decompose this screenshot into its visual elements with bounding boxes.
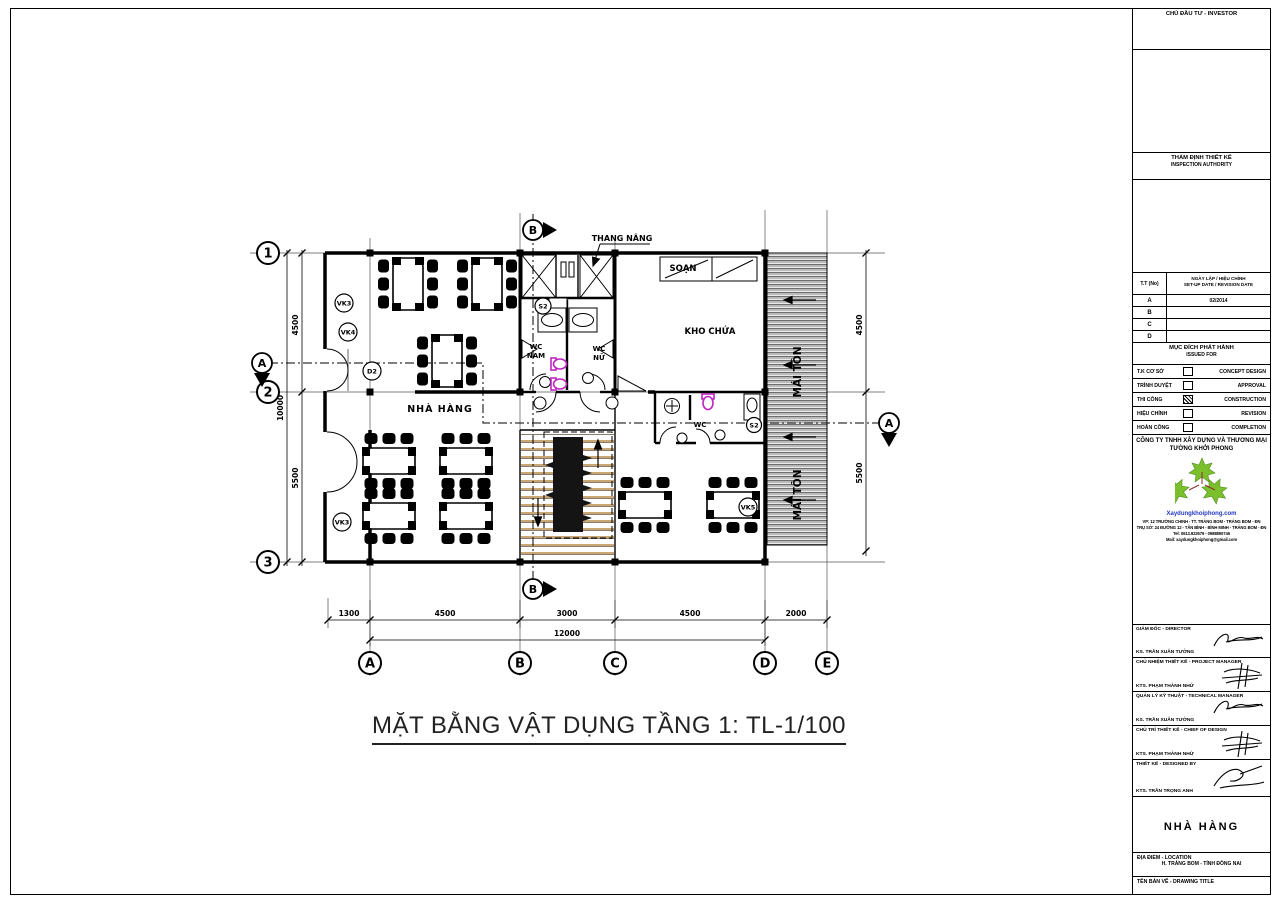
dim-total-bottom: 12000	[554, 629, 580, 638]
revision-header: T.T (No) NGÀY LẬP / HIỆU CHỈNH SET-UP DA…	[1133, 273, 1270, 295]
purpose-checkbox-1	[1183, 381, 1193, 390]
signer-designed-by: THIẾT KẾ - DESIGNED BY KTS. TRẦN TRỌNG A…	[1133, 760, 1270, 797]
dim-left-2: 5500	[291, 468, 300, 489]
tag-vk5: VK5	[741, 504, 756, 512]
signature-2	[1208, 696, 1268, 720]
signature-4	[1210, 764, 1268, 792]
dim-right-2: 5500	[855, 463, 864, 484]
purpose-vn-3: HIỆU CHỈNH	[1137, 411, 1183, 417]
dim-left-1: 4500	[291, 315, 300, 336]
grid-row-3: 3	[263, 556, 272, 571]
purpose-checkbox-4	[1183, 423, 1193, 432]
section-a-left: A	[258, 357, 267, 370]
rev-b-no: B	[1133, 307, 1167, 318]
roof-label-top: MÁI TÔN	[791, 346, 804, 397]
purpose-vn-4: HOÀN CÔNG	[1137, 425, 1183, 431]
rev-d-no: D	[1133, 331, 1167, 342]
purpose-en-3: REVISION	[1193, 411, 1266, 417]
dim-1300: 1300	[339, 609, 360, 618]
staircase	[521, 432, 614, 558]
purpose-en-4: COMPLETION	[1193, 425, 1266, 431]
purpose-checkbox-0	[1183, 367, 1193, 376]
company-box: CÔNG TY TNHH XÂY DỰNG VÀ THƯƠNG MẠI TƯỜN…	[1133, 435, 1270, 625]
signer-name-0: KS. TRẦN XUÂN TƯỞNG	[1136, 650, 1194, 655]
grid-col-b: B	[515, 657, 525, 672]
grid-col-e: E	[823, 657, 832, 672]
signer-technical-manager: QUẢN LÝ KỸ THUẬT - TECHNICAL MANAGER KS.…	[1133, 692, 1270, 726]
inspection-label-en: INSPECTION AUTHORITY	[1133, 162, 1270, 168]
dim-2000: 2000	[786, 609, 807, 618]
purpose-en-0: CONCEPT DESIGN	[1193, 369, 1266, 375]
revision-row-d: D	[1133, 331, 1270, 343]
label-pantry: SOẠN	[669, 264, 696, 274]
grid-col-c: C	[610, 657, 620, 672]
location-box: ĐỊA ĐIỂM - LOCATION H. TRẢNG BOM - TỈNH …	[1133, 853, 1270, 877]
drawing-main-title: MẶT BẰNG VẬT DỤNG TẦNG 1: TL-1/100	[372, 712, 846, 745]
signer-name-4: KTS. TRẦN TRỌNG ANH	[1136, 789, 1193, 794]
purpose-checkbox-3	[1183, 409, 1193, 418]
grid-row-1: 1	[263, 247, 272, 262]
section-b-bottom: B	[529, 583, 537, 596]
revision-row-c: C	[1133, 319, 1270, 331]
rev-c-no: C	[1133, 319, 1167, 330]
inspection-box: THẨM ĐỊNH THIẾT KẾ INSPECTION AUTHORITY	[1133, 153, 1270, 180]
signature-1	[1212, 662, 1268, 690]
title-block: CHỦ ĐẦU TƯ - INVESTOR THẨM ĐỊNH THIẾT KẾ…	[1132, 8, 1271, 895]
project-name-box: NHÀ HÀNG	[1133, 797, 1270, 853]
signer-director: GIÁM ĐỐC - DIRECTOR KS. TRẦN XUÂN TƯỞNG	[1133, 625, 1270, 658]
tag-s2: S2	[538, 303, 547, 311]
inspection-label-vn: THẨM ĐỊNH THIẾT KẾ	[1133, 155, 1270, 162]
company-address-1: VP: 12 TRƯỜNG CHINH - TT. TRẢNG BOM - TR…	[1133, 519, 1270, 525]
purpose-row-1: TRÌNH DUYỆT APPROVAL	[1133, 379, 1270, 393]
rev-d-date	[1167, 331, 1270, 342]
company-logo-icon	[1175, 456, 1229, 506]
label-wc-male-1: WC	[530, 343, 543, 351]
purpose-row-0: T.K CƠ SỞ CONCEPT DESIGN	[1133, 365, 1270, 379]
signer-name-1: KTS. PHẠM THÀNH NHỨ	[1136, 684, 1194, 689]
company-name-line1: CÔNG TY TNHH XÂY DỰNG VÀ THƯƠNG MẠI	[1133, 438, 1270, 446]
grid-col-a: A	[365, 657, 375, 672]
signer-chief-design: CHỦ TRÌ THIẾT KẾ - CHIEF OF DESIGN KTS. …	[1133, 726, 1270, 760]
label-wc-female-2: NỮ	[593, 353, 605, 362]
investor-box: CHỦ ĐẦU TƯ - INVESTOR	[1133, 9, 1270, 50]
roof-label-bottom: MÁI TÔN	[791, 469, 804, 520]
section-b-top: B	[529, 224, 537, 237]
signer-role-4: THIẾT KẾ - DESIGNED BY	[1136, 762, 1196, 767]
section-a-right: A	[885, 417, 894, 430]
rev-a-date: 02/2014	[1167, 295, 1270, 306]
investor-space	[1133, 50, 1270, 153]
project-name: NHÀ HÀNG	[1133, 797, 1270, 833]
drawing-title-box: TÊN BẢN VẼ - DRAWING TITLE	[1133, 877, 1270, 904]
tag-d2: D2	[367, 368, 377, 376]
tag-vk4: VK4	[341, 329, 356, 337]
signer-name-2: KS. TRẦN XUÂN TƯỞNG	[1136, 718, 1194, 723]
label-restaurant: NHÀ HÀNG	[407, 403, 473, 415]
issued-for-box: MỤC ĐÍCH PHÁT HÀNH ISSUED FOR	[1133, 343, 1270, 365]
purpose-en-1: APPROVAL	[1193, 383, 1266, 389]
issued-label-vn: MỤC ĐÍCH PHÁT HÀNH	[1133, 345, 1270, 352]
purpose-vn-1: TRÌNH DUYỆT	[1137, 383, 1183, 389]
dim-3000: 3000	[557, 609, 578, 618]
rev-a-no: A	[1133, 295, 1167, 306]
label-lift: THANG NÂNG	[592, 232, 653, 243]
label-wc-male-2: NAM	[527, 352, 545, 360]
purpose-row-3: HIỆU CHỈNH REVISION	[1133, 407, 1270, 421]
dim-4500b: 4500	[680, 609, 701, 618]
signer-role-0: GIÁM ĐỐC - DIRECTOR	[1136, 627, 1191, 632]
tag-vk3: VK3	[337, 300, 352, 308]
signature-3	[1212, 730, 1268, 758]
label-wc-female-1: WC	[593, 345, 606, 353]
label-storage: KHO CHỨA	[685, 325, 736, 337]
dim-4500a: 4500	[435, 609, 456, 618]
purpose-row-4: HOÀN CÔNG COMPLETION	[1133, 421, 1270, 435]
company-address-4: Mail: xaydungkhoiphong@gmail.com	[1133, 537, 1270, 543]
tag-vk3b: VK3	[335, 519, 350, 527]
purpose-row-2: THI CÔNG CONSTRUCTION	[1133, 393, 1270, 407]
purpose-vn-0: T.K CƠ SỞ	[1137, 369, 1183, 375]
investor-label: CHỦ ĐẦU TƯ - INVESTOR	[1166, 11, 1237, 17]
drawing-sheet: { "plan": { "main_title": "MẶT BẰNG VẬT …	[0, 0, 1280, 904]
location-value: H. TRẢNG BOM - TỈNH ĐỒNG NAI	[1133, 861, 1270, 867]
tag-s2b: S2	[749, 422, 758, 430]
issued-label-en: ISSUED FOR	[1133, 352, 1270, 358]
company-name-line2: TƯỜNG KHỞI PHONG	[1133, 446, 1270, 454]
label-wc-small: WC	[694, 421, 707, 429]
revision-no-header: T.T (No)	[1133, 273, 1167, 294]
revision-row-a: A 02/2014	[1133, 295, 1270, 307]
purpose-vn-2: THI CÔNG	[1137, 397, 1183, 403]
purpose-en-2: CONSTRUCTION	[1193, 397, 1266, 403]
revision-row-b: B	[1133, 307, 1270, 319]
dim-right-1: 4500	[855, 315, 864, 336]
signature-0	[1208, 629, 1268, 653]
company-website: Xaydungkhoiphong.com	[1133, 511, 1270, 517]
drawing-title-label: TÊN BẢN VẼ - DRAWING TITLE	[1133, 877, 1270, 885]
metal-roof-strip: MÁI TÔN MÁI TÔN	[767, 253, 827, 545]
revision-date-header-en: SET-UP DATE / REVISION DATE	[1167, 282, 1270, 288]
signer-name-3: KTS. PHẠM THÀNH NHỨ	[1136, 752, 1194, 757]
grid-row-2: 2	[263, 386, 272, 401]
signer-project-manager: CHỦ NHIỆM THIẾT KẾ - PROJECT MANAGER KTS…	[1133, 658, 1270, 692]
rev-b-date	[1167, 307, 1270, 318]
location-label: ĐỊA ĐIỂM - LOCATION	[1133, 853, 1270, 861]
floor-plan-svg: 1300 4500 3000 4500 2000 12000 4500 5500…	[0, 0, 1280, 904]
purpose-checkbox-2	[1183, 395, 1193, 404]
inspection-space	[1133, 180, 1270, 273]
rev-c-date	[1167, 319, 1270, 330]
grid-col-d: D	[760, 657, 771, 672]
